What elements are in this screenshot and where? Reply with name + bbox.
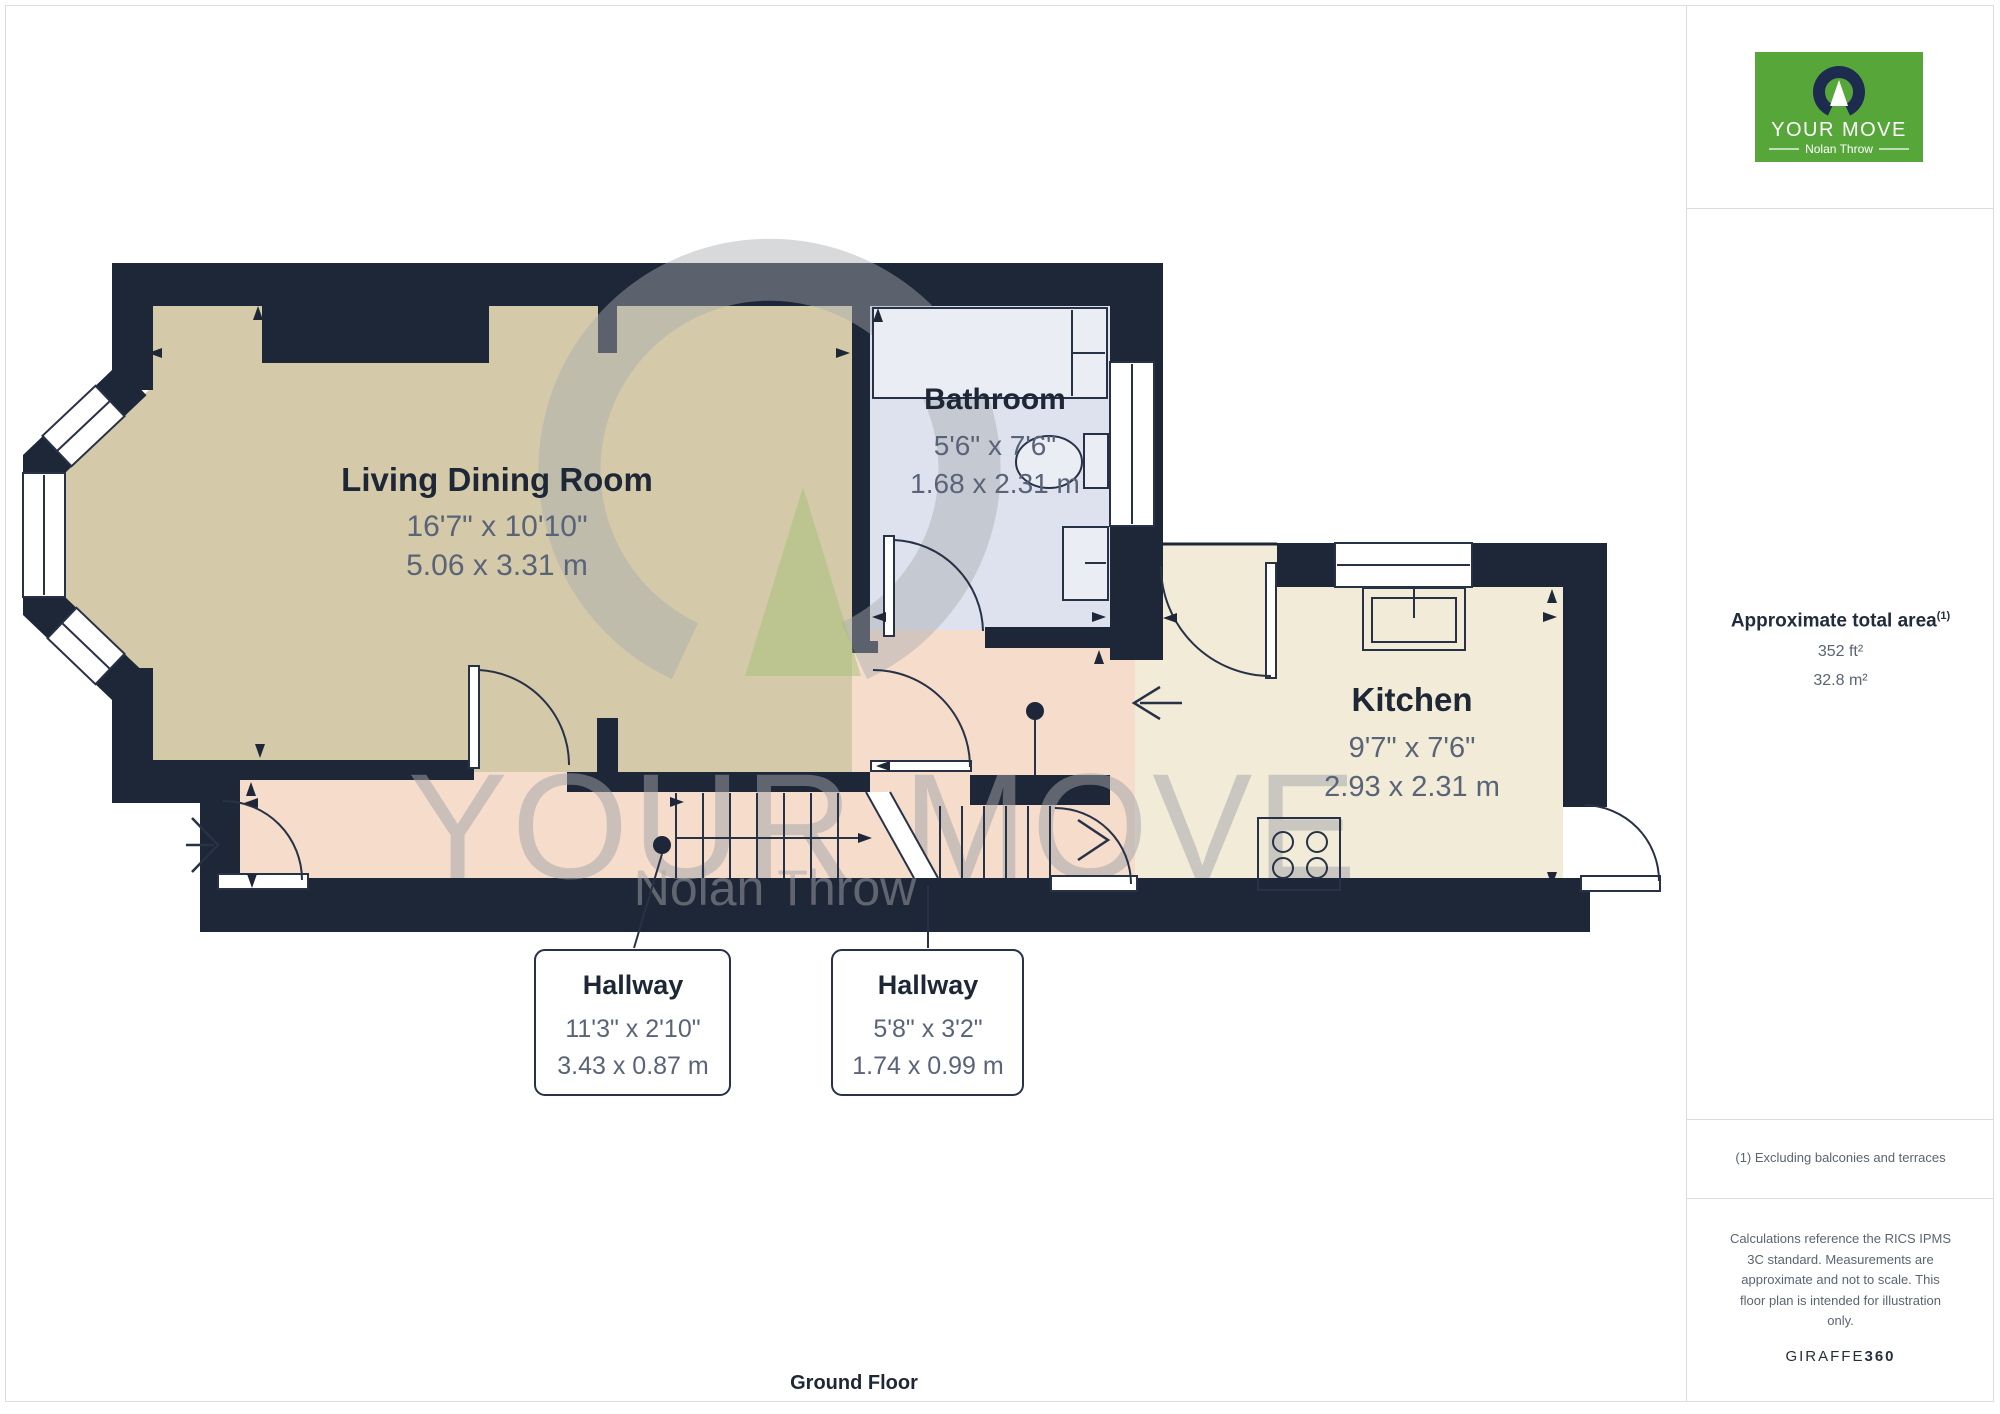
living-room-name: Living Dining Room bbox=[341, 461, 653, 498]
hallway2-name: Hallway bbox=[878, 970, 979, 1000]
living-room-dim-imperial: 16'7" x 10'10" bbox=[406, 510, 587, 543]
sidebar-section-line bbox=[1687, 1119, 1994, 1120]
toilet-cistern bbox=[1084, 434, 1108, 488]
giraffe360-brand: GIRAFFE360 bbox=[1687, 1348, 1994, 1365]
calc-line: approximate and not to scale. This bbox=[1687, 1270, 1994, 1291]
hallway2-dim-metric: 1.74 x 0.99 m bbox=[852, 1052, 1003, 1080]
bathroom-dim-metric: 1.68 x 2.31 m bbox=[910, 468, 1080, 499]
approximate-area-section: Approximate total area(1) 352 ft² 32.8 m… bbox=[1687, 610, 1994, 690]
living-door-leaf bbox=[469, 666, 479, 768]
calc-line: Calculations reference the RICS IPMS bbox=[1687, 1229, 1994, 1250]
area-ft: 352 ft² bbox=[1687, 643, 1994, 661]
kitchen-name: Kitchen bbox=[1351, 681, 1472, 718]
bathroom-name: Bathroom bbox=[924, 383, 1066, 416]
logo-subtitle: Nolan Throw bbox=[1805, 142, 1873, 156]
sidebar-section-line bbox=[1687, 208, 1994, 209]
kitchen-dim-metric: 2.93 x 2.31 m bbox=[1324, 771, 1500, 803]
calc-line: only. bbox=[1687, 1311, 1994, 1332]
agency-logo: YOUR MOVE Nolan Throw bbox=[1755, 52, 1923, 162]
calculations-note: Calculations reference the RICS IPMS 3C … bbox=[1687, 1229, 1994, 1332]
hallway-callouts: Hallway 11'3" x 2'10" 3.43 x 0.87 m Hall… bbox=[535, 950, 1023, 1095]
back-door-arc bbox=[1585, 805, 1659, 881]
kitchen-door-leaf bbox=[1266, 563, 1276, 678]
hallway1-dim-metric: 3.43 x 0.87 m bbox=[557, 1052, 708, 1080]
hallway1-dim-imperial: 11'3" x 2'10" bbox=[565, 1015, 700, 1043]
sidebar-section-line bbox=[1687, 1198, 1994, 1199]
hallway1-name: Hallway bbox=[583, 970, 684, 1000]
logo-brand: YOUR MOVE bbox=[1771, 119, 1907, 141]
floor-plan: YOUR MOVE Nolan Throw bbox=[0, 0, 2000, 1414]
area-footnote-marker: (1) bbox=[1937, 610, 1950, 622]
front-door-leaf bbox=[218, 874, 308, 889]
calc-line: 3C standard. Measurements are bbox=[1687, 1250, 1994, 1271]
calc-line: floor plan is intended for illustration bbox=[1687, 1291, 1994, 1312]
area-m: 32.8 m² bbox=[1687, 672, 1994, 690]
back-door-leaf bbox=[1581, 876, 1660, 891]
kitchen-dim-imperial: 9'7" x 7'6" bbox=[1349, 732, 1476, 764]
leader-dot bbox=[653, 836, 671, 854]
area-title: Approximate total area(1) bbox=[1687, 610, 1994, 632]
floor-label: Ground Floor bbox=[790, 1372, 918, 1394]
hallway2-dim-imperial: 5'8" x 3'2" bbox=[873, 1015, 982, 1043]
footnote: (1) Excluding balconies and terraces bbox=[1687, 1150, 1994, 1165]
leader-dot bbox=[1026, 702, 1044, 720]
living-room-dim-metric: 5.06 x 3.31 m bbox=[406, 549, 588, 582]
chimney-breast bbox=[262, 306, 489, 363]
understairs-door-leaf bbox=[1051, 876, 1137, 891]
bathroom-dim-imperial: 5'6" x 7'6" bbox=[934, 430, 1056, 461]
sidebar-divider bbox=[1686, 5, 1687, 1402]
